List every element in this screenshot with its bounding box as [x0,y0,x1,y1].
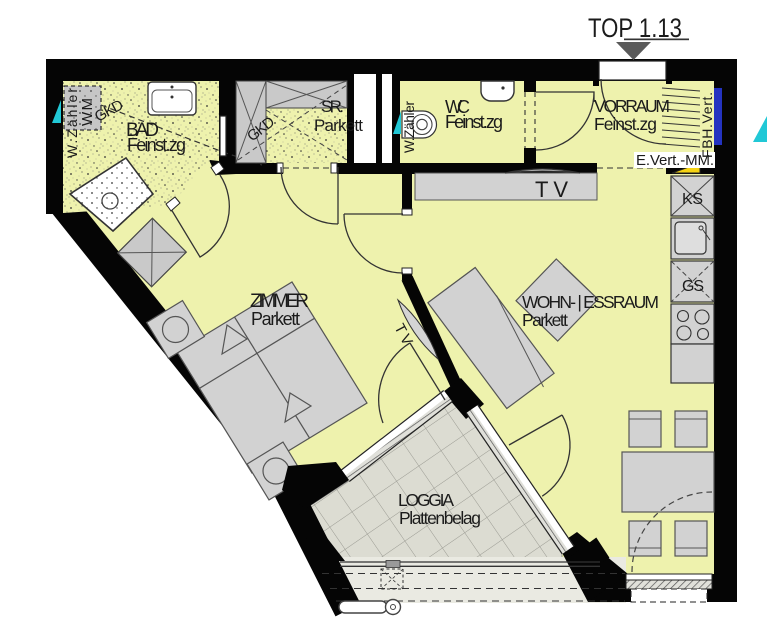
svg-text:TOP 1.13: TOP 1.13 [588,13,682,43]
svg-text:FBH.Vert.: FBH.Vert. [699,92,715,158]
svg-text:Feinst.zg: Feinst.zg [445,112,503,132]
svg-text:W.Zähler: W.Zähler [402,101,417,154]
svg-text:LOGGIA: LOGGIA [398,490,454,510]
svg-text:Parkett: Parkett [251,309,300,329]
svg-text:Parkett: Parkett [522,310,568,330]
svg-text:W.Zähler: W.Zähler [64,88,80,158]
svg-text:Feinst.zg: Feinst.zg [594,114,657,134]
svg-text:KS: KS [682,191,703,208]
svg-text:GS: GS [682,278,704,295]
svg-text:Feinst.zg: Feinst.zg [127,135,186,155]
svg-text:WOHN- | ESSRAUM: WOHN- | ESSRAUM [522,292,659,312]
svg-text:Plattenbelag: Plattenbelag [399,508,481,528]
svg-text:SR.: SR. [321,97,344,116]
svg-text:Parkett: Parkett [314,116,363,135]
svg-text:VORRAUM: VORRAUM [594,96,670,116]
